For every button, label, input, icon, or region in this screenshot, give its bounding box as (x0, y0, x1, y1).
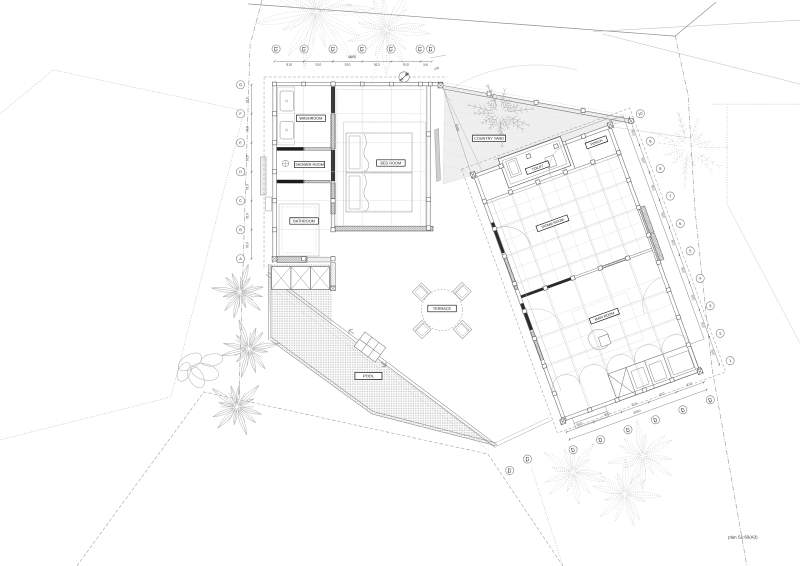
svg-text:910: 910 (245, 213, 249, 219)
svg-text:E: E (239, 140, 242, 145)
svg-text:G: G (239, 82, 242, 87)
svg-text:B: B (239, 227, 242, 232)
svg-text:910: 910 (245, 155, 249, 161)
svg-text:TERRACE: TERRACE (433, 307, 452, 311)
svg-text:D: D (239, 169, 242, 174)
svg-text:910: 910 (245, 126, 249, 132)
svg-text:COUNTRY YARD: COUNTRY YARD (474, 137, 504, 141)
svg-text:300: 300 (423, 63, 428, 67)
svg-text:4850: 4850 (348, 55, 356, 59)
svg-text:910: 910 (245, 97, 249, 103)
svg-text:910: 910 (403, 63, 409, 67)
svg-text:910: 910 (345, 63, 351, 67)
svg-text:BATHROOM: BATHROOM (293, 219, 315, 223)
svg-text:POOL: POOL (363, 373, 375, 378)
svg-text:910: 910 (315, 63, 321, 67)
svg-text:WASHROOM: WASHROOM (299, 117, 322, 121)
svg-text:910: 910 (286, 63, 292, 67)
svg-text:plan S1:60(A3): plan S1:60(A3) (728, 535, 758, 540)
svg-text:910: 910 (245, 184, 249, 190)
svg-text:910: 910 (374, 63, 380, 67)
svg-text:SHOWER ROOM: SHOWER ROOM (295, 163, 323, 167)
svg-text:A: A (239, 256, 242, 261)
svg-text:910: 910 (245, 242, 249, 248)
svg-text:BED ROOM: BED ROOM (380, 161, 401, 165)
svg-text:C: C (239, 198, 242, 203)
